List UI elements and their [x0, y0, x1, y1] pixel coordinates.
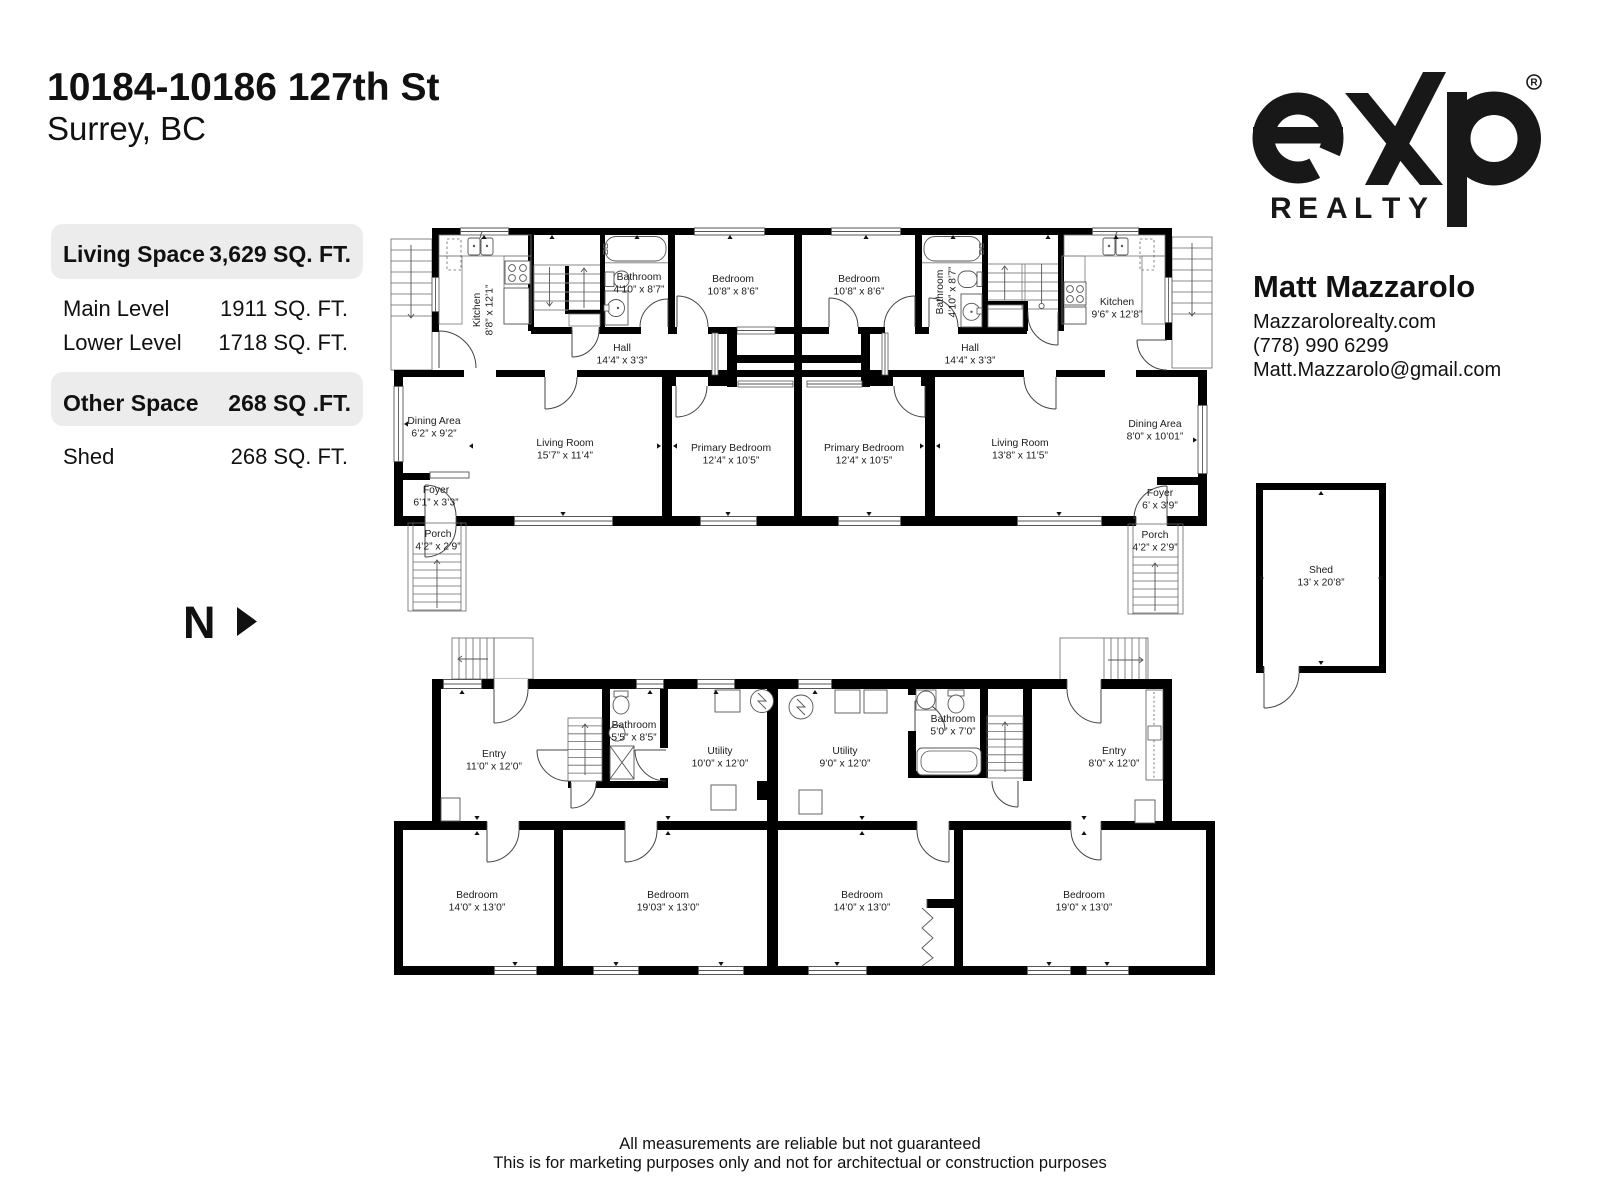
- svg-text:11’0” x 12’0”: 11’0” x 12’0”: [466, 762, 522, 773]
- svg-text:Dining Area: Dining Area: [407, 416, 461, 427]
- svg-text:Bathroom: Bathroom: [612, 720, 657, 731]
- svg-text:Shed: Shed: [1309, 565, 1333, 576]
- svg-text:8’0” x 10’01”: 8’0” x 10’01”: [1127, 432, 1184, 443]
- svg-text:5’5” x 8’5”: 5’5” x 8’5”: [611, 733, 657, 744]
- svg-text:14’0” x 13’0”: 14’0” x 13’0”: [449, 903, 506, 914]
- svg-text:10’8” x 8’6”: 10’8” x 8’6”: [834, 287, 886, 298]
- svg-text:19’03” x 13’0”: 19’03” x 13’0”: [637, 903, 700, 914]
- svg-text:Entry: Entry: [482, 749, 507, 760]
- svg-text:13’8” x 11’5”: 13’8” x 11’5”: [992, 451, 1048, 462]
- svg-text:Entry: Entry: [1102, 746, 1127, 757]
- svg-text:Bedroom: Bedroom: [712, 274, 754, 285]
- svg-text:Living Room: Living Room: [991, 438, 1048, 449]
- svg-text:Porch: Porch: [425, 529, 452, 540]
- svg-text:4’10” x 8’7”: 4’10” x 8’7”: [948, 266, 959, 318]
- svg-text:15’7” x 11’4”: 15’7” x 11’4”: [537, 451, 593, 462]
- svg-text:6’1” x 3’3”: 6’1” x 3’3”: [413, 498, 459, 509]
- svg-text:12’4” x 10’5”: 12’4” x 10’5”: [703, 456, 760, 467]
- svg-text:Bathroom: Bathroom: [935, 270, 946, 315]
- svg-text:Porch: Porch: [1142, 530, 1169, 541]
- svg-text:4’2” x 2’9”: 4’2” x 2’9”: [1132, 543, 1178, 554]
- svg-text:10’0” x 12’0”: 10’0” x 12’0”: [692, 759, 749, 770]
- svg-text:Bedroom: Bedroom: [456, 890, 498, 901]
- svg-text:Primary Bedroom: Primary Bedroom: [824, 443, 904, 454]
- svg-text:14’4” x 3’3”: 14’4” x 3’3”: [945, 356, 997, 367]
- svg-text:Bathroom: Bathroom: [931, 714, 976, 725]
- svg-text:Utility: Utility: [832, 746, 858, 757]
- svg-text:14’4” x 3’3”: 14’4” x 3’3”: [597, 356, 649, 367]
- svg-text:8’0” x 12’0”: 8’0” x 12’0”: [1089, 759, 1141, 770]
- svg-text:Dining Area: Dining Area: [1128, 419, 1182, 430]
- svg-text:Kitchen: Kitchen: [1100, 297, 1135, 308]
- svg-text:Kitchen: Kitchen: [472, 293, 483, 328]
- svg-text:9’6” x 12’8”: 9’6” x 12’8”: [1092, 310, 1144, 321]
- svg-text:12’4” x 10’5”: 12’4” x 10’5”: [836, 456, 893, 467]
- svg-text:5’0” x 7’0”: 5’0” x 7’0”: [930, 727, 976, 738]
- svg-text:19’0” x 13’0”: 19’0” x 13’0”: [1056, 903, 1113, 914]
- svg-text:4’10” x 8’7”: 4’10” x 8’7”: [614, 285, 666, 296]
- svg-text:4’2” x 2’9”: 4’2” x 2’9”: [415, 542, 461, 553]
- svg-text:Bedroom: Bedroom: [838, 274, 880, 285]
- svg-text:6’ x 3’9”: 6’ x 3’9”: [1142, 501, 1178, 512]
- svg-text:13’ x 20’8”: 13’ x 20’8”: [1297, 578, 1345, 589]
- svg-text:Foyer: Foyer: [423, 485, 450, 496]
- svg-text:Primary Bedroom: Primary Bedroom: [691, 443, 771, 454]
- svg-text:8’8” x 12’1”: 8’8” x 12’1”: [485, 284, 496, 336]
- svg-text:Hall: Hall: [613, 343, 631, 354]
- svg-text:Bedroom: Bedroom: [841, 890, 883, 901]
- svg-text:R: R: [1530, 78, 1538, 89]
- svg-text:14’0” x 13’0”: 14’0” x 13’0”: [834, 903, 891, 914]
- svg-text:REALTY: REALTY: [1270, 192, 1428, 225]
- svg-text:Hall: Hall: [961, 343, 979, 354]
- svg-text:Foyer: Foyer: [1147, 488, 1174, 499]
- svg-text:Bedroom: Bedroom: [1063, 890, 1105, 901]
- svg-text:Living Room: Living Room: [536, 438, 593, 449]
- svg-text:Bathroom: Bathroom: [617, 272, 662, 283]
- svg-text:9’0” x 12’0”: 9’0” x 12’0”: [820, 759, 872, 770]
- svg-text:Bedroom: Bedroom: [647, 890, 689, 901]
- svg-text:6’2” x 9’2”: 6’2” x 9’2”: [411, 429, 457, 440]
- svg-text:10’8” x 8’6”: 10’8” x 8’6”: [708, 287, 760, 298]
- svg-text:Utility: Utility: [707, 746, 733, 757]
